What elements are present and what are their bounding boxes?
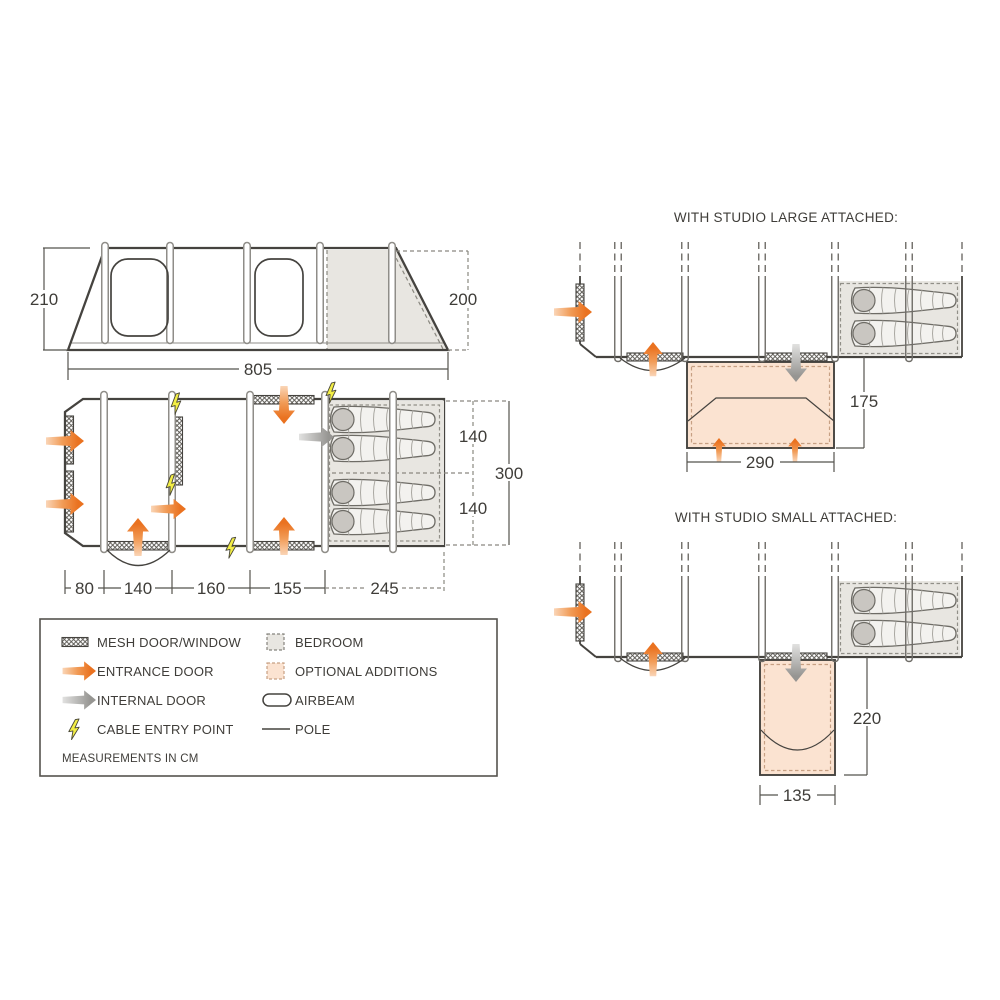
side-window bbox=[255, 259, 303, 336]
side-elevation-view: 210 805 200 bbox=[27, 243, 482, 381]
legend-panel: MESH DOOR/WINDOW ENTRANCE DOOR INTERNAL … bbox=[40, 619, 497, 776]
legend-item-label: POLE bbox=[295, 722, 331, 737]
entrance-door-arrow bbox=[554, 301, 592, 323]
legend-item-label: INTERNAL DOOR bbox=[97, 693, 206, 708]
studio-small-width-label: 135 bbox=[783, 786, 811, 805]
side-length-label: 805 bbox=[244, 360, 272, 379]
side-bedroom-shaded-area bbox=[327, 250, 448, 350]
studio-small-diagram: WITH STUDIO SMALL ATTACHED: 220 135 bbox=[554, 510, 962, 805]
airbeam-legend-icon bbox=[263, 694, 291, 706]
floorplan-section-dim: 140 bbox=[124, 579, 152, 598]
bedroom-depth-bottom-label: 140 bbox=[459, 499, 487, 518]
diagram-svg: 210 805 200 bbox=[0, 0, 1000, 1000]
airbeam-pole bbox=[169, 392, 176, 553]
total-width-label: 300 bbox=[495, 464, 523, 483]
optional-studio-large bbox=[687, 362, 834, 448]
entrance-door-arrow bbox=[554, 601, 592, 623]
mesh-legend-icon bbox=[62, 638, 88, 647]
floorplan-section-dim: 245 bbox=[370, 579, 398, 598]
airbeam-pole bbox=[322, 392, 329, 553]
legend-item-label: OPTIONAL ADDITIONS bbox=[295, 664, 438, 679]
side-height-right-label: 200 bbox=[449, 290, 477, 309]
airbeam-pole bbox=[247, 392, 254, 553]
floorplan-top-view: 80 140 160 155 245 140 140 300 bbox=[46, 382, 528, 598]
studio-small-depth-label: 220 bbox=[853, 709, 881, 728]
legend-note: MEASUREMENTS IN CM bbox=[62, 753, 199, 765]
tent-spec-diagram: 210 805 200 bbox=[0, 0, 1000, 1000]
airbeam-pole bbox=[102, 243, 109, 344]
bedroom-legend-icon bbox=[267, 634, 284, 650]
floorplan-section-dim: 160 bbox=[197, 579, 225, 598]
airbeam-pole bbox=[244, 243, 251, 344]
studio-small-title: WITH STUDIO SMALL ATTACHED: bbox=[675, 510, 897, 525]
airbeam-pole bbox=[390, 392, 397, 553]
cable-entry-bolt bbox=[224, 537, 240, 558]
bedroom-depth-top-label: 140 bbox=[459, 427, 487, 446]
optional-additions-legend-icon bbox=[267, 663, 284, 679]
legend-item-label: AIRBEAM bbox=[295, 693, 355, 708]
studio-large-depth-label: 175 bbox=[850, 392, 878, 411]
floorplan-section-dim: 155 bbox=[273, 579, 301, 598]
legend-item-label: CABLE ENTRY POINT bbox=[97, 722, 234, 737]
dimension-height-left: 210 bbox=[27, 248, 90, 350]
legend-item-label: BEDROOM bbox=[295, 635, 364, 650]
airbeam-pole bbox=[317, 243, 324, 344]
studio-large-diagram: WITH STUDIO LARGE ATTACHED: 175 290 bbox=[554, 210, 962, 472]
studio-large-title: WITH STUDIO LARGE ATTACHED: bbox=[674, 210, 898, 225]
airbeam-pole bbox=[101, 392, 108, 553]
floorplan-bottom-dimensions: 80 140 160 155 245 bbox=[65, 552, 444, 598]
airbeam-pole bbox=[389, 243, 396, 344]
side-window bbox=[111, 259, 168, 336]
entrance-door-arrow bbox=[273, 386, 295, 424]
floorplan-section-dim: 80 bbox=[75, 579, 94, 598]
legend-item-label: ENTRANCE DOOR bbox=[97, 664, 214, 679]
side-height-left-label: 210 bbox=[30, 290, 58, 309]
studio-large-width-label: 290 bbox=[746, 453, 774, 472]
dimension-length: 805 bbox=[68, 352, 448, 380]
legend-item-label: MESH DOOR/WINDOW bbox=[97, 635, 242, 650]
